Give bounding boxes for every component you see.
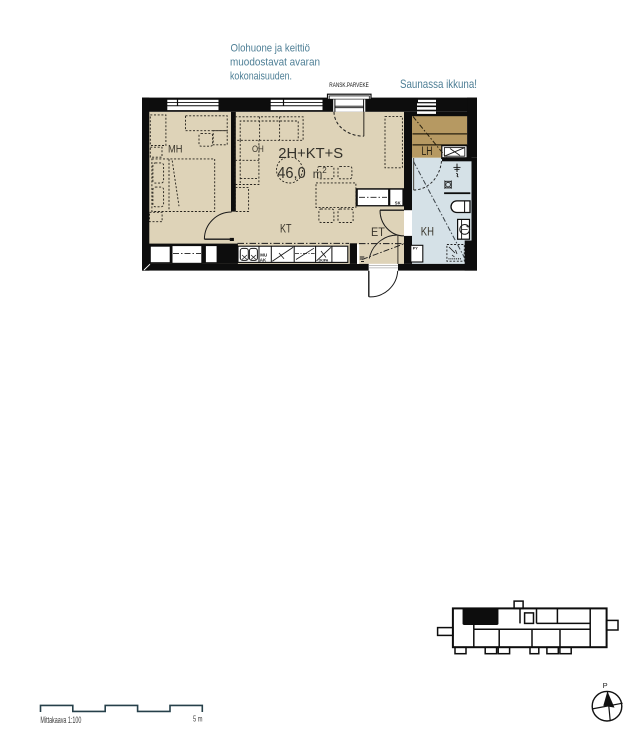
svg-text:muodostavat avaran: muodostavat avaran — [230, 57, 320, 69]
svg-text:Saunassa ikkuna!: Saunassa ikkuna! — [400, 77, 477, 91]
svg-text:OH: OH — [252, 144, 264, 155]
svg-text:KT: KT — [280, 221, 292, 235]
svg-text:m: m — [313, 169, 323, 181]
svg-text:Olohuone ja keittiö: Olohuone ja keittiö — [231, 42, 311, 54]
svg-text:RANSK.PARVEKE: RANSK.PARVEKE — [329, 82, 369, 89]
svg-text:ET: ET — [371, 225, 385, 239]
svg-text:SK: SK — [395, 200, 401, 205]
svg-text:LH: LH — [422, 146, 433, 158]
svg-text:kokonaisuuden.: kokonaisuuden. — [230, 71, 292, 83]
svg-text:MH: MH — [168, 143, 183, 155]
svg-text:AK: AK — [260, 258, 267, 263]
svg-text:PY: PY — [413, 247, 419, 251]
svg-text:P: P — [603, 681, 608, 690]
svg-text:46,0: 46,0 — [277, 165, 305, 182]
svg-text:KH: KH — [421, 225, 434, 239]
svg-text:Mittakaava 1:100: Mittakaava 1:100 — [40, 715, 81, 725]
svg-text:5 m: 5 m — [193, 714, 203, 724]
svg-text:JK/PA: JK/PA — [319, 259, 329, 263]
svg-text:2H+KT+S: 2H+KT+S — [278, 146, 343, 162]
svg-text:2: 2 — [322, 166, 327, 175]
